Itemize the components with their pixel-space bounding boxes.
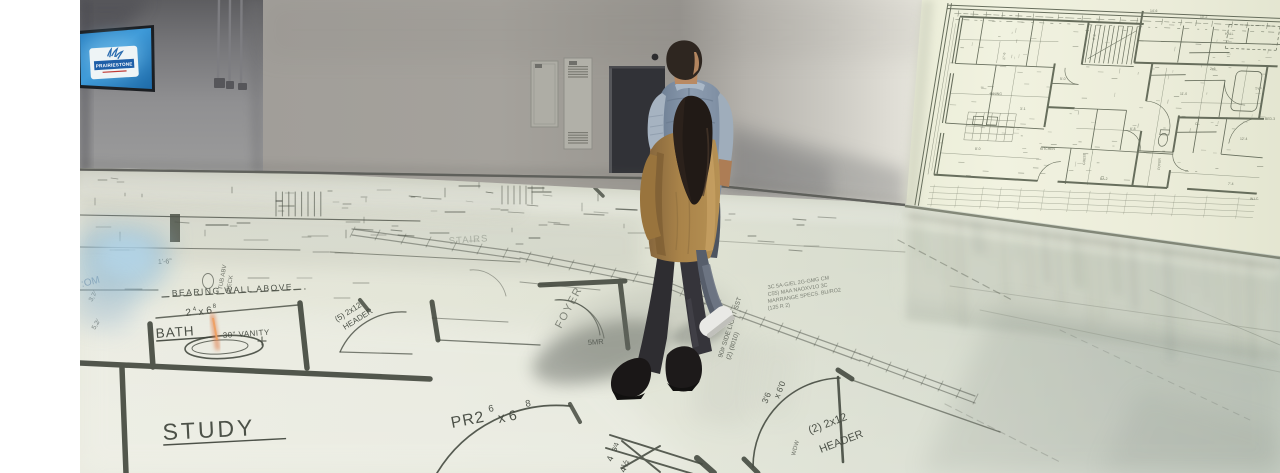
svg-text:GUEST: GUEST: [1082, 153, 1087, 165]
svg-text:CL.: CL.: [1195, 122, 1200, 126]
svg-text:BA-2: BA-2: [1100, 177, 1108, 181]
svg-text:10'-2: 10'-2: [1200, 15, 1208, 19]
svg-text:6'-8: 6'-8: [1130, 127, 1136, 131]
svg-text:DINING: DINING: [990, 92, 1002, 96]
svg-text:14'-6: 14'-6: [1150, 9, 1158, 13]
svg-text:9'-2: 9'-2: [1092, 34, 1096, 40]
svg-text:11'-0: 11'-0: [1180, 92, 1187, 96]
svg-text:3'-1: 3'-1: [1020, 107, 1026, 111]
svg-text:TYP: TYP: [1255, 87, 1262, 91]
svg-text:W.I.C.: W.I.C.: [1250, 197, 1259, 201]
svg-text:5'-0: 5'-0: [1060, 77, 1066, 81]
svg-text:HALL: HALL: [1225, 32, 1234, 36]
svg-text:BED-3: BED-3: [1265, 117, 1275, 121]
svg-text:8'-0: 8'-0: [975, 147, 981, 151]
svg-text:2x6: 2x6: [1210, 67, 1216, 71]
svg-text:12'-4: 12'-4: [1240, 137, 1248, 141]
svg-text:7'-4: 7'-4: [1228, 182, 1234, 186]
svg-text:KITCHEN: KITCHEN: [1040, 147, 1055, 151]
svg-text:17'-6: 17'-6: [1002, 52, 1007, 60]
svg-text:FOYER: FOYER: [1157, 158, 1162, 170]
